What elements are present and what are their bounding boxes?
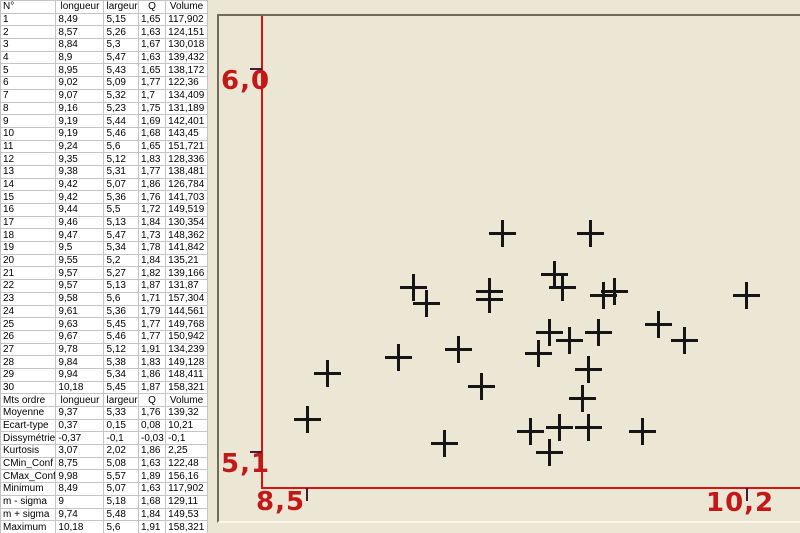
table-cell: 9,02 [56, 77, 104, 90]
header-cell: largeur [104, 1, 139, 14]
x-axis-tick [306, 488, 308, 501]
table-cell: 5,47 [104, 229, 139, 242]
scatter-point [549, 274, 576, 301]
table-row: 219,575,271,82139,166 [1, 267, 208, 280]
table-cell: 3 [1, 39, 56, 52]
table-cell: 1,72 [138, 204, 165, 217]
table-row: 58,955,431,65138,172 [1, 64, 208, 77]
table-cell: 156,16 [166, 470, 208, 483]
table-cell: 9,19 [56, 115, 104, 128]
table-cell: 25 [1, 318, 56, 331]
table-cell: 9,98 [56, 470, 104, 483]
header-cell: Volume [166, 394, 208, 407]
table-cell: 5,07 [104, 483, 139, 496]
table-cell: 5,36 [104, 305, 139, 318]
table-row: 109,195,461,68143,45 [1, 127, 208, 140]
scatter-point [385, 344, 412, 371]
table-cell: 1,84 [138, 216, 165, 229]
table-cell: 9,57 [56, 280, 104, 293]
table-cell: 1,87 [138, 280, 165, 293]
table-cell: Minimum [1, 483, 56, 496]
table-cell: 9,5 [56, 242, 104, 255]
table-row: 38,845,31,67130,018 [1, 39, 208, 52]
table-cell: 5,09 [104, 77, 139, 90]
table-cell: 9,55 [56, 254, 104, 267]
scatter-point [569, 385, 596, 412]
table-cell: 5,6 [104, 521, 139, 533]
table-cell: 5,57 [104, 470, 139, 483]
header-cell: Q [138, 1, 165, 14]
table-cell: 5,6 [104, 140, 139, 153]
table-cell: 1,7 [138, 89, 165, 102]
table-cell: 8,95 [56, 64, 104, 77]
table-cell: 9,84 [56, 356, 104, 369]
table-cell: 1,68 [138, 127, 165, 140]
table-cell: 9,94 [56, 368, 104, 381]
table-cell: 5,3 [104, 39, 139, 52]
scatter-point [536, 439, 563, 466]
table-cell: 19 [1, 242, 56, 255]
table-cell: 5,6 [104, 292, 139, 305]
table-cell: 122,36 [166, 77, 208, 90]
table-cell: 9,35 [56, 153, 104, 166]
table-cell: 1,87 [138, 381, 165, 394]
table-cell: 1,63 [138, 457, 165, 470]
table-cell: 5,13 [104, 280, 139, 293]
plot-canvas[interactable] [208, 0, 800, 533]
table-cell: CMax_Conf [1, 470, 56, 483]
table-cell: 158,321 [166, 381, 208, 394]
table-cell: 15 [1, 191, 56, 204]
table-cell: 139,32 [166, 407, 208, 420]
table-cell: 1,63 [138, 51, 165, 64]
table-row: 269,675,461,77150,942 [1, 330, 208, 343]
stats-row: Maximum10,185,61,91158,321 [1, 521, 208, 533]
table-cell: 5,23 [104, 102, 139, 115]
table-cell: 9,24 [56, 140, 104, 153]
table-cell: 5,07 [104, 178, 139, 191]
table-row: 199,55,341,78141,842 [1, 242, 208, 255]
table-row: 28,575,261,63124,151 [1, 26, 208, 39]
table-row: 89,165,231,75131,189 [1, 102, 208, 115]
table-cell: 5,27 [104, 267, 139, 280]
table-row: 189,475,471,73148,362 [1, 229, 208, 242]
table-cell: 5,48 [104, 508, 139, 521]
table-row: 179,465,131,84130,354 [1, 216, 208, 229]
table-cell: 1,86 [138, 368, 165, 381]
table-cell: 5,12 [104, 343, 139, 356]
scatter-point [556, 327, 583, 354]
table-cell: 26 [1, 330, 56, 343]
table-row: 99,195,441,69142,401 [1, 115, 208, 128]
table-cell: 141,842 [166, 242, 208, 255]
table-cell: 135,21 [166, 254, 208, 267]
table-cell: 139,432 [166, 51, 208, 64]
table-cell: 1,77 [138, 330, 165, 343]
table-cell: 1,83 [138, 153, 165, 166]
table-cell: 131,87 [166, 280, 208, 293]
table-cell: -0,03 [138, 432, 165, 445]
scatter-point [575, 414, 602, 441]
data-table-panel: N°longueurlargeurQVolume18,495,151,65117… [0, 0, 208, 533]
table-cell: 143,45 [166, 127, 208, 140]
table-cell: 9,16 [56, 102, 104, 115]
scatter-point [294, 406, 321, 433]
table-cell: 1,75 [138, 102, 165, 115]
table-cell: 1,76 [138, 191, 165, 204]
table-cell: 130,018 [166, 39, 208, 52]
table-cell: 5 [1, 64, 56, 77]
table-row: 119,245,61,65151,721 [1, 140, 208, 153]
table-cell: Ecart-type [1, 419, 56, 432]
table-cell: 151,721 [166, 140, 208, 153]
table-cell: 1,73 [138, 229, 165, 242]
data-table-body: N°longueurlargeurQVolume18,495,151,65117… [1, 1, 208, 533]
table-cell: 1 [1, 13, 56, 26]
table-cell: 6 [1, 77, 56, 90]
table-cell: m - sigma [1, 495, 56, 508]
table-cell: 8,57 [56, 26, 104, 39]
table-cell: 1,78 [138, 242, 165, 255]
table-cell: 129,11 [166, 495, 208, 508]
stats-row: Minimum8,495,071,63117,902 [1, 483, 208, 496]
table-cell: 1,65 [138, 64, 165, 77]
table-cell: Moyenne [1, 407, 56, 420]
table-cell: Dissymétrie [1, 432, 56, 445]
table-cell: 9,37 [56, 407, 104, 420]
table-cell: 1,76 [138, 407, 165, 420]
table-cell: 1,77 [138, 77, 165, 90]
x-axis-tick [746, 488, 748, 501]
table-cell: 28 [1, 356, 56, 369]
table-cell: Maximum [1, 521, 56, 533]
scatter-point [601, 278, 628, 305]
header-cell: Q [138, 394, 165, 407]
table-cell: 149,519 [166, 204, 208, 217]
table-cell: 11 [1, 140, 56, 153]
header-cell: longueur [56, 1, 104, 14]
table-cell: 1,91 [138, 343, 165, 356]
table-cell: 117,902 [166, 13, 208, 26]
scatter-point [445, 336, 472, 363]
table-cell: 5,08 [104, 457, 139, 470]
table-cell: 141,703 [166, 191, 208, 204]
scatter-point [489, 220, 516, 247]
table-cell: 149,768 [166, 318, 208, 331]
data-table: N°longueurlargeurQVolume18,495,151,65117… [0, 0, 208, 533]
table-cell: 9,42 [56, 178, 104, 191]
table-cell: 130,354 [166, 216, 208, 229]
table-cell: 148,362 [166, 229, 208, 242]
table-cell: 8,75 [56, 457, 104, 470]
table-cell: 10 [1, 127, 56, 140]
scatter-point [476, 278, 503, 305]
scatter-point [671, 327, 698, 354]
table-cell: 1,68 [138, 495, 165, 508]
table-cell: 23 [1, 292, 56, 305]
table-cell: 5,26 [104, 26, 139, 39]
table-cell: 8,49 [56, 13, 104, 26]
table-cell: 5,5 [104, 204, 139, 217]
stats-row: Moyenne9,375,331,76139,32 [1, 407, 208, 420]
y-axis-tick [250, 68, 262, 70]
table-cell: 0,15 [104, 419, 139, 432]
table-cell: 9,67 [56, 330, 104, 343]
header-cell: longueur [56, 394, 104, 407]
table-cell: 2,25 [166, 445, 208, 458]
table-cell: 5,46 [104, 127, 139, 140]
table-cell: 5,12 [104, 153, 139, 166]
table-cell: 27 [1, 343, 56, 356]
table-row: 279,785,121,91134,239 [1, 343, 208, 356]
table-cell: 1,69 [138, 115, 165, 128]
scatter-point [575, 356, 602, 383]
table-cell: 149,53 [166, 508, 208, 521]
stats-row: m - sigma95,181,68129,11 [1, 495, 208, 508]
scatter-point [468, 373, 495, 400]
table-cell: 5,46 [104, 330, 139, 343]
table-cell: 9 [1, 115, 56, 128]
table-cell: 9,44 [56, 204, 104, 217]
table-cell: 9,42 [56, 191, 104, 204]
table-cell: 9,47 [56, 229, 104, 242]
scatter-point [431, 430, 458, 457]
table-cell: 8,84 [56, 39, 104, 52]
table-cell: 1,71 [138, 292, 165, 305]
table-cell: 24 [1, 305, 56, 318]
table-cell: 9 [56, 495, 104, 508]
table-cell: 134,239 [166, 343, 208, 356]
table-cell: 5,44 [104, 115, 139, 128]
table-cell: 131,189 [166, 102, 208, 115]
stats-row: Kurtosis3,072,021,862,25 [1, 445, 208, 458]
table-cell: 139,166 [166, 267, 208, 280]
table-row: 69,025,091,77122,36 [1, 77, 208, 90]
table-cell: 1,84 [138, 508, 165, 521]
scatter-point [629, 418, 656, 445]
table-row: 149,425,071,86126,784 [1, 178, 208, 191]
table-row: 139,385,311,77138,481 [1, 165, 208, 178]
table-cell: 1,63 [138, 483, 165, 496]
table-cell: 117,902 [166, 483, 208, 496]
table-cell: 144,561 [166, 305, 208, 318]
table-cell: 8,49 [56, 483, 104, 496]
table-cell: 29 [1, 368, 56, 381]
table-cell: 12 [1, 153, 56, 166]
table-cell: 13 [1, 165, 56, 178]
table-cell: 124,151 [166, 26, 208, 39]
table-cell: 5,13 [104, 216, 139, 229]
table-row: 239,585,61,71157,304 [1, 292, 208, 305]
y-axis-tick [250, 451, 262, 453]
table-cell: 5,47 [104, 51, 139, 64]
table-cell: 1,77 [138, 318, 165, 331]
table-cell: 9,19 [56, 127, 104, 140]
table-cell: 1,77 [138, 165, 165, 178]
table-cell: 5,34 [104, 242, 139, 255]
table-cell: 142,401 [166, 115, 208, 128]
table-cell: 17 [1, 216, 56, 229]
stats-row: m + sigma9,745,481,84149,53 [1, 508, 208, 521]
table-cell: 1,84 [138, 254, 165, 267]
table-cell: 9,57 [56, 267, 104, 280]
table-cell: 9,46 [56, 216, 104, 229]
table-cell: 18 [1, 229, 56, 242]
table-cell: 149,128 [166, 356, 208, 369]
table-cell: 148,411 [166, 368, 208, 381]
table-cell: 5,45 [104, 381, 139, 394]
stats-row: Dissymétrie-0,37-0,1-0,03-0,1 [1, 432, 208, 445]
stats-row: CMin_Conf8,755,081,63122,48 [1, 457, 208, 470]
table-cell: 9,07 [56, 89, 104, 102]
table-cell: 16 [1, 204, 56, 217]
table-cell: 1,89 [138, 470, 165, 483]
table-cell: 10,18 [56, 381, 104, 394]
table-cell: 5,34 [104, 368, 139, 381]
scatter-point [413, 290, 440, 317]
table-cell: 20 [1, 254, 56, 267]
table-cell: 9,63 [56, 318, 104, 331]
table-cell: -0,37 [56, 432, 104, 445]
table-cell: 5,2 [104, 254, 139, 267]
scatter-point [577, 220, 604, 247]
table-row: 259,635,451,77149,768 [1, 318, 208, 331]
table-cell: 2 [1, 26, 56, 39]
scatter-point [314, 360, 341, 387]
table-cell: 1,82 [138, 267, 165, 280]
table-row: 299,945,341,86148,411 [1, 368, 208, 381]
table-cell: 7 [1, 89, 56, 102]
table-cell: Kurtosis [1, 445, 56, 458]
table-cell: 5,18 [104, 495, 139, 508]
table-row: 249,615,361,79144,561 [1, 305, 208, 318]
table-cell: 5,33 [104, 407, 139, 420]
table-cell: 5,31 [104, 165, 139, 178]
table-row: 18,495,151,65117,902 [1, 13, 208, 26]
table-cell: 0,08 [138, 419, 165, 432]
table-cell: 1,86 [138, 445, 165, 458]
table-cell: 4 [1, 51, 56, 64]
table-cell: 150,942 [166, 330, 208, 343]
table-cell: 30 [1, 381, 56, 394]
table-cell: 10,18 [56, 521, 104, 533]
table-cell: 134,409 [166, 89, 208, 102]
table-cell: -0,1 [104, 432, 139, 445]
table-cell: 8 [1, 102, 56, 115]
table-cell: 3,07 [56, 445, 104, 458]
table-cell: 5,32 [104, 89, 139, 102]
table-cell: 1,67 [138, 39, 165, 52]
scatter-point [733, 282, 760, 309]
scatter-point [546, 414, 573, 441]
table-cell: 1,63 [138, 26, 165, 39]
table-cell: 9,61 [56, 305, 104, 318]
scatter-point [585, 319, 612, 346]
table-cell: 5,38 [104, 356, 139, 369]
header-cell: N° [1, 1, 56, 14]
table-row: 169,445,51,72149,519 [1, 204, 208, 217]
table-row: 209,555,21,84135,21 [1, 254, 208, 267]
table-row: 79,075,321,7134,409 [1, 89, 208, 102]
table-cell: 157,304 [166, 292, 208, 305]
scatter-plot-panel: 6,0 5,1 8,5 10,2 [208, 0, 800, 533]
table-cell: 9,58 [56, 292, 104, 305]
table-cell: 5,36 [104, 191, 139, 204]
stats-header-row: Mts ordrelongueurlargeurQVolume [1, 394, 208, 407]
table-cell: 9,74 [56, 508, 104, 521]
table-cell: 22 [1, 280, 56, 293]
stats-row: Ecart-type0,370,150,0810,21 [1, 419, 208, 432]
table-row: 229,575,131,87131,87 [1, 280, 208, 293]
header-cell: largeur [104, 394, 139, 407]
table-cell: 122,48 [166, 457, 208, 470]
table-row: 129,355,121,83128,336 [1, 153, 208, 166]
table-cell: 1,65 [138, 13, 165, 26]
table-cell: 1,65 [138, 140, 165, 153]
table-cell: 126,784 [166, 178, 208, 191]
table-row: 289,845,381,83149,128 [1, 356, 208, 369]
table-cell: 21 [1, 267, 56, 280]
table-cell: 5,15 [104, 13, 139, 26]
table-cell: 10,21 [166, 419, 208, 432]
table-cell: 1,91 [138, 521, 165, 533]
table-cell: 138,172 [166, 64, 208, 77]
table-cell: 158,321 [166, 521, 208, 533]
table-cell: 14 [1, 178, 56, 191]
table-cell: 5,45 [104, 318, 139, 331]
table-cell: 1,79 [138, 305, 165, 318]
header-cell: Volume [166, 1, 208, 14]
table-cell: 5,43 [104, 64, 139, 77]
table-cell: 1,86 [138, 178, 165, 191]
table-cell: -0,1 [166, 432, 208, 445]
table-header-row: N°longueurlargeurQVolume [1, 1, 208, 14]
table-row: 159,425,361,76141,703 [1, 191, 208, 204]
scatter-point [645, 311, 672, 338]
table-cell: 2,02 [104, 445, 139, 458]
table-cell: 1,83 [138, 356, 165, 369]
table-row: 48,95,471,63139,432 [1, 51, 208, 64]
table-cell: m + sigma [1, 508, 56, 521]
table-cell: 138,481 [166, 165, 208, 178]
header-cell: Mts ordre [1, 394, 56, 407]
table-row: 3010,185,451,87158,321 [1, 381, 208, 394]
table-cell: 9,38 [56, 165, 104, 178]
table-cell: 8,9 [56, 51, 104, 64]
table-cell: CMin_Conf [1, 457, 56, 470]
table-cell: 128,336 [166, 153, 208, 166]
stats-row: CMax_Conf9,985,571,89156,16 [1, 470, 208, 483]
table-cell: 9,78 [56, 343, 104, 356]
table-cell: 0,37 [56, 419, 104, 432]
